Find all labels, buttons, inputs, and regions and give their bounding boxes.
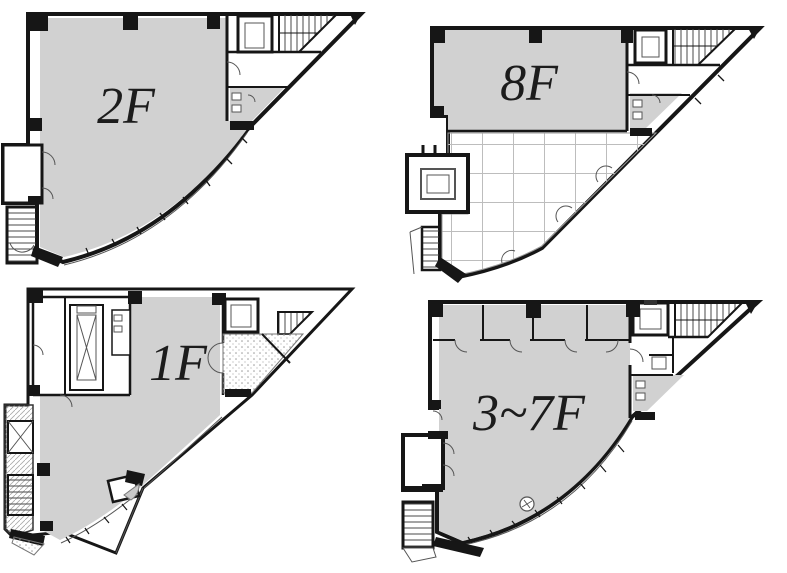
floorplan-3-7f-panel: 3~7F xyxy=(390,285,787,573)
machine-room-8f xyxy=(407,145,468,212)
stairs-left-3-7f xyxy=(403,502,433,548)
floorplan-sheet: 2F xyxy=(0,0,787,573)
floor-area-2f xyxy=(32,18,285,265)
floor-label-8f: 8F xyxy=(500,55,559,112)
floorplan-1f: 1F xyxy=(0,285,390,573)
floorplan-2f-panel: 2F xyxy=(0,0,390,285)
floorplan-8f: 8F xyxy=(390,0,787,285)
elevator-8f xyxy=(635,30,666,63)
floorplan-3-7f: 3~7F xyxy=(390,285,787,573)
floor-label-2f: 2F xyxy=(97,78,156,135)
stairs-basement-1f xyxy=(8,475,33,515)
stairs-1f xyxy=(278,312,312,334)
driveway-1f xyxy=(5,405,45,555)
floor-label-1f: 1F xyxy=(149,335,208,392)
roof-terrace-8f xyxy=(442,133,656,275)
floorplan-1f-panel: 1F xyxy=(0,285,390,573)
floor-label-3-7f: 3~7F xyxy=(472,385,586,442)
floorplan-2f: 2F xyxy=(0,0,390,285)
symbol-marker-3-7f xyxy=(520,497,534,511)
floorplan-8f-panel: 8F xyxy=(390,0,787,285)
elevator-2f xyxy=(238,16,272,52)
west-rooms-1f xyxy=(33,297,130,407)
